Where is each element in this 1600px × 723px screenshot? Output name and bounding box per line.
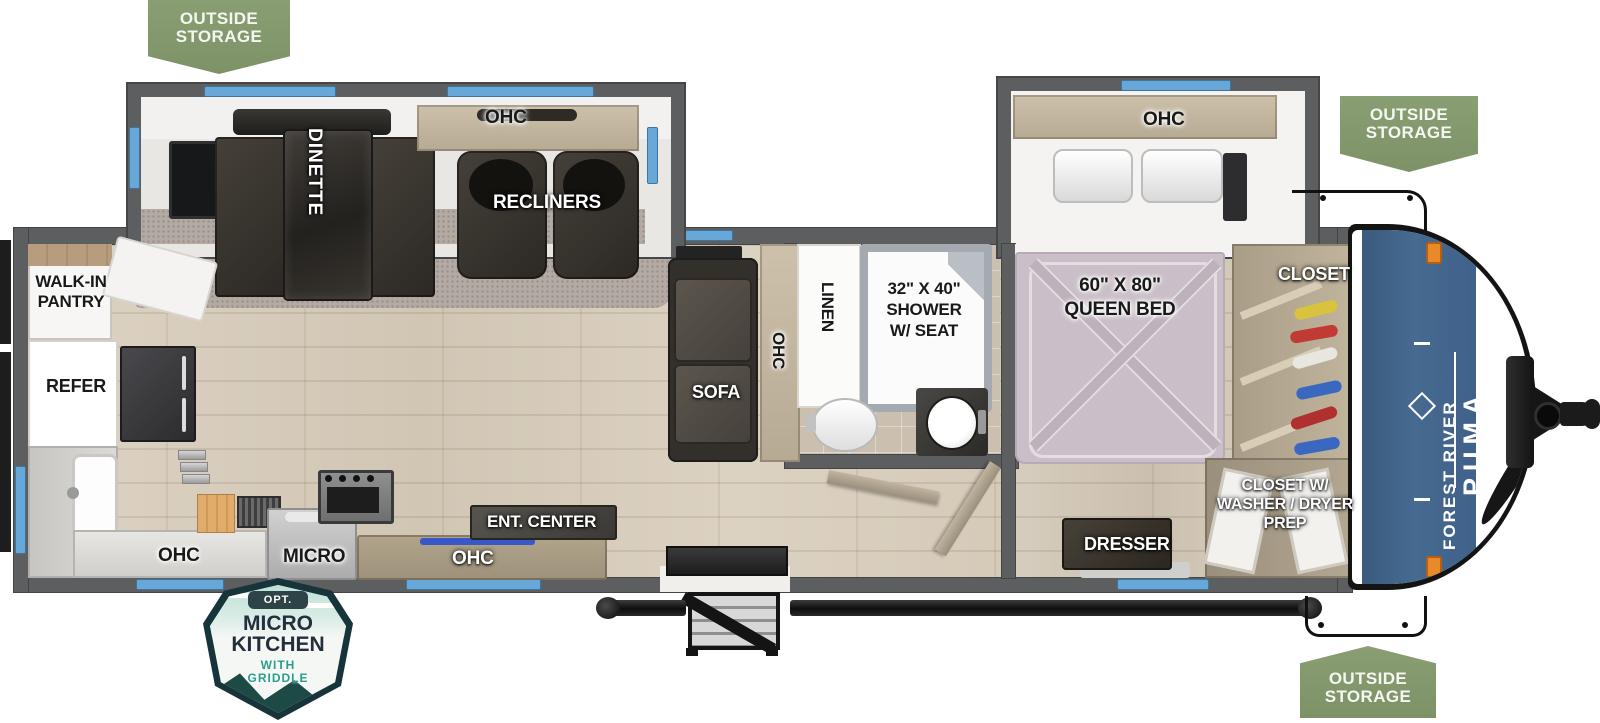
window-bottom-rear (137, 580, 223, 589)
vent-louver-2 (180, 462, 208, 472)
vent-louver-3 (182, 474, 210, 484)
sofa-label: SOFA (692, 382, 740, 403)
dinette-ohc-label: OHC (485, 107, 527, 129)
frame-bolt-bottom-1 (1318, 622, 1324, 628)
rear-bumper-upper (0, 240, 11, 344)
window-dinette-slide-side-l (130, 128, 139, 188)
window-dinette-slide-side-r (648, 128, 657, 183)
window-rear-wall (16, 467, 25, 553)
walk-in-pantry-line2: PANTRY (33, 292, 109, 312)
badge-opt-pill: OPT. (248, 591, 308, 609)
washer-dryer-line1: CLOSET W/ (1200, 476, 1370, 495)
entry-door-open (666, 546, 788, 576)
pillow-right (1141, 149, 1223, 203)
entry-steps (688, 592, 780, 650)
forest-river-diamond-logo-icon (1408, 392, 1436, 420)
bedroom-tv-icon (1223, 153, 1247, 221)
shower-line2: SHOWER (860, 299, 988, 320)
brand-manufacturer: FOREST RIVER (1440, 334, 1460, 550)
badge-text-line2: STORAGE (1366, 124, 1453, 142)
bathroom-wall-bottom (785, 455, 1018, 468)
step-rail (680, 592, 776, 654)
badge-text-line2: STORAGE (176, 28, 263, 46)
cutting-board (197, 494, 235, 533)
dinette-slideout (128, 84, 684, 257)
front-cap-body: FOREST RIVER PUMA (1352, 230, 1530, 584)
sofa (668, 258, 758, 462)
fridge-handle-bottom (182, 398, 186, 432)
frame-bolt-top-2 (1407, 195, 1413, 201)
galley-ohc-label: OHC (452, 548, 494, 570)
linen-label: LINEN (817, 282, 837, 368)
rear-bumper-lower (0, 352, 11, 552)
recliner-right (553, 151, 639, 279)
kitchen-ohc-label: OHC (158, 545, 200, 567)
kitchen-sink (72, 454, 118, 538)
badge-title-line2: KITCHEN (210, 634, 346, 655)
shower-line3: W/ SEAT (860, 320, 988, 341)
window-bed-slide (1122, 81, 1230, 90)
recliner-left (457, 151, 547, 279)
logo-dash-top (1414, 342, 1430, 345)
toilet-hinge (806, 414, 816, 432)
dinette-table (285, 131, 371, 299)
sofa-ohc-label: OHC (768, 332, 788, 392)
walk-in-pantry-line1: WALK-IN (33, 272, 109, 292)
hitch-pivot-bolt (1534, 402, 1562, 430)
bathroom-vanity (916, 388, 988, 456)
a-frame-outline-bottom (1305, 596, 1427, 637)
micro-kitchen-badge: OPT. MICRO KITCHEN WITH GRIDDLE (203, 578, 353, 720)
toilet (812, 398, 878, 452)
badge-title-line1: MICRO (210, 613, 346, 634)
clothes-blue-1 (1295, 379, 1342, 400)
badge-text-line1: OUTSIDE (180, 10, 258, 28)
fridge-handle-top (182, 356, 186, 390)
washer-dryer-line2: WASHER / DRYER (1200, 495, 1370, 514)
dinette-label: DINETTE (303, 128, 325, 288)
cap-swoosh-black-top (1485, 230, 1530, 335)
ent-center-label: ENT. CENTER (487, 512, 596, 532)
refrigerator (120, 346, 196, 442)
washer-dryer-label: CLOSET W/ WASHER / DRYER PREP (1200, 476, 1370, 533)
bedroom-wall (1002, 244, 1015, 578)
stove-knob-4 (367, 475, 374, 482)
outside-storage-badge-top-right: OUTSIDE STORAGE (1340, 96, 1478, 172)
floorplan-forest-river-puma: FOREST RIVER PUMA OUTSIDE STORAGE OUTSID… (0, 0, 1600, 723)
step-foot-right (766, 648, 778, 656)
recliner-overhead-cabinet (417, 105, 639, 151)
window-dinette-slide-right (448, 87, 593, 96)
pantry-floor (28, 244, 112, 266)
faucet-icon (67, 487, 79, 499)
washer-dryer-line3: PREP (1200, 514, 1370, 533)
frame-bolt-top-1 (1320, 195, 1326, 201)
awning-tube-right (790, 600, 1310, 616)
clothes-yellow (1293, 299, 1339, 321)
micro-kitchen-badge-inner: OPT. MICRO KITCHEN WITH GRIDDLE (210, 585, 346, 713)
hitch-coupler-plate (1506, 356, 1534, 468)
walk-in-pantry-label: WALK-IN PANTRY (33, 272, 109, 312)
awning-end-cap-left (596, 597, 620, 619)
window-bottom-kitchen (407, 580, 540, 589)
shower-label: 32" X 40" SHOWER W/ SEAT (860, 278, 988, 341)
cap-blue-band: FOREST RIVER PUMA (1362, 230, 1476, 584)
stove-knob-2 (339, 475, 346, 482)
vent-louver-1 (178, 450, 206, 460)
bed-slideout (998, 78, 1318, 257)
clothes-red-1 (1289, 324, 1338, 344)
marker-light-bottom (1426, 556, 1442, 578)
brand-model: PUMA (1458, 346, 1489, 496)
sofa-cushion-top (674, 278, 752, 362)
step-foot-left (686, 648, 698, 656)
queen-bed-line1: 60" X 80" (1015, 274, 1225, 298)
puma-underline (1454, 352, 1456, 488)
refer-label: REFER (46, 376, 106, 397)
closet-label: CLOSET (1278, 264, 1350, 285)
shower-line1: 32" X 40" (860, 278, 988, 299)
logo-dash-bottom (1414, 498, 1430, 501)
queen-bed-line2: QUEEN BED (1015, 298, 1225, 322)
queen-bed-label: 60" X 80" QUEEN BED (1015, 274, 1225, 322)
marker-light-top (1426, 242, 1442, 264)
dinette-bench-left (215, 137, 287, 297)
window-top-center (686, 231, 732, 240)
stove-knob-1 (325, 475, 332, 482)
bathroom-sink (926, 396, 978, 450)
micro-label: MICRO (283, 546, 345, 568)
oven-cavity (327, 487, 379, 513)
stove-knob-3 (353, 475, 360, 482)
recliners-label: RECLINERS (493, 192, 601, 214)
badge-text-line1: OUTSIDE (1329, 670, 1407, 688)
badge-text-line2: STORAGE (1325, 688, 1412, 706)
hitch-ball (1584, 399, 1600, 429)
clothes-blue-2 (1293, 436, 1340, 456)
outside-storage-badge-top-left: OUTSIDE STORAGE (148, 0, 290, 74)
clothes-red-2 (1289, 405, 1338, 431)
outside-storage-badge-bottom-right: OUTSIDE STORAGE (1300, 646, 1436, 718)
pillow-left (1053, 149, 1133, 203)
stove (318, 470, 394, 524)
window-dinette-slide-left (205, 87, 335, 96)
badge-text-line1: OUTSIDE (1370, 106, 1448, 124)
bedroom-ohc-label: OHC (1143, 109, 1185, 131)
dresser-label: DRESSER (1084, 534, 1170, 555)
sofa-cushion-bottom (674, 364, 752, 444)
badge-sub-line2: GRIDDLE (210, 672, 346, 685)
tv-icon (169, 141, 219, 219)
window-bottom-bedroom (1118, 580, 1208, 589)
dinette-bench-right (369, 137, 435, 297)
frame-bolt-bottom-2 (1402, 622, 1408, 628)
vanity-faucet-icon (978, 410, 986, 434)
